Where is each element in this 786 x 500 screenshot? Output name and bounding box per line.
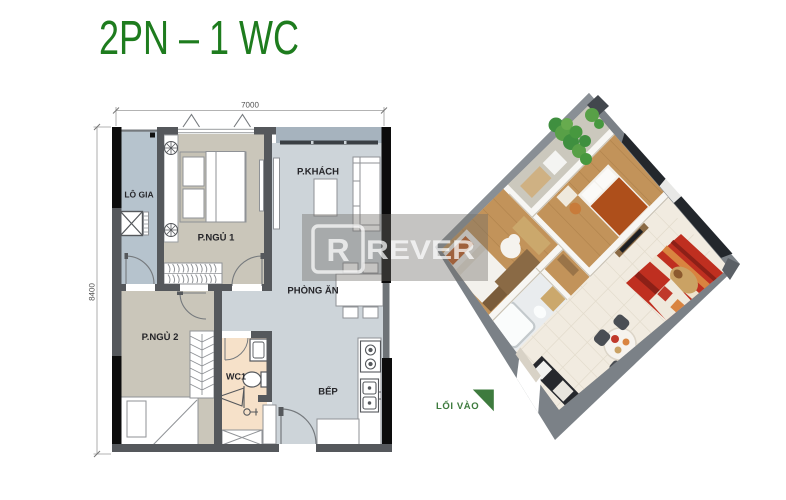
svg-text:LÔ GIA: LÔ GIA bbox=[124, 190, 153, 200]
svg-text:LỐI VÀO: LỐI VÀO bbox=[436, 400, 479, 412]
svg-text:P.NGỦ 2: P.NGỦ 2 bbox=[142, 331, 179, 343]
svg-text:WC1: WC1 bbox=[226, 372, 246, 382]
svg-text:7000: 7000 bbox=[241, 101, 259, 110]
svg-text:BẾP: BẾP bbox=[318, 386, 338, 398]
svg-text:P.KHÁCH: P.KHÁCH bbox=[297, 166, 339, 178]
svg-text:REVER: REVER bbox=[366, 235, 475, 265]
svg-text:PHÒNG ĂN: PHÒNG ĂN bbox=[287, 285, 338, 297]
svg-text:P.NGỦ 1: P.NGỦ 1 bbox=[198, 232, 236, 244]
svg-text:8400: 8400 bbox=[88, 283, 97, 301]
svg-text:2PN – 1 WC: 2PN – 1 WC bbox=[99, 12, 299, 65]
svg-text:R: R bbox=[326, 232, 349, 268]
